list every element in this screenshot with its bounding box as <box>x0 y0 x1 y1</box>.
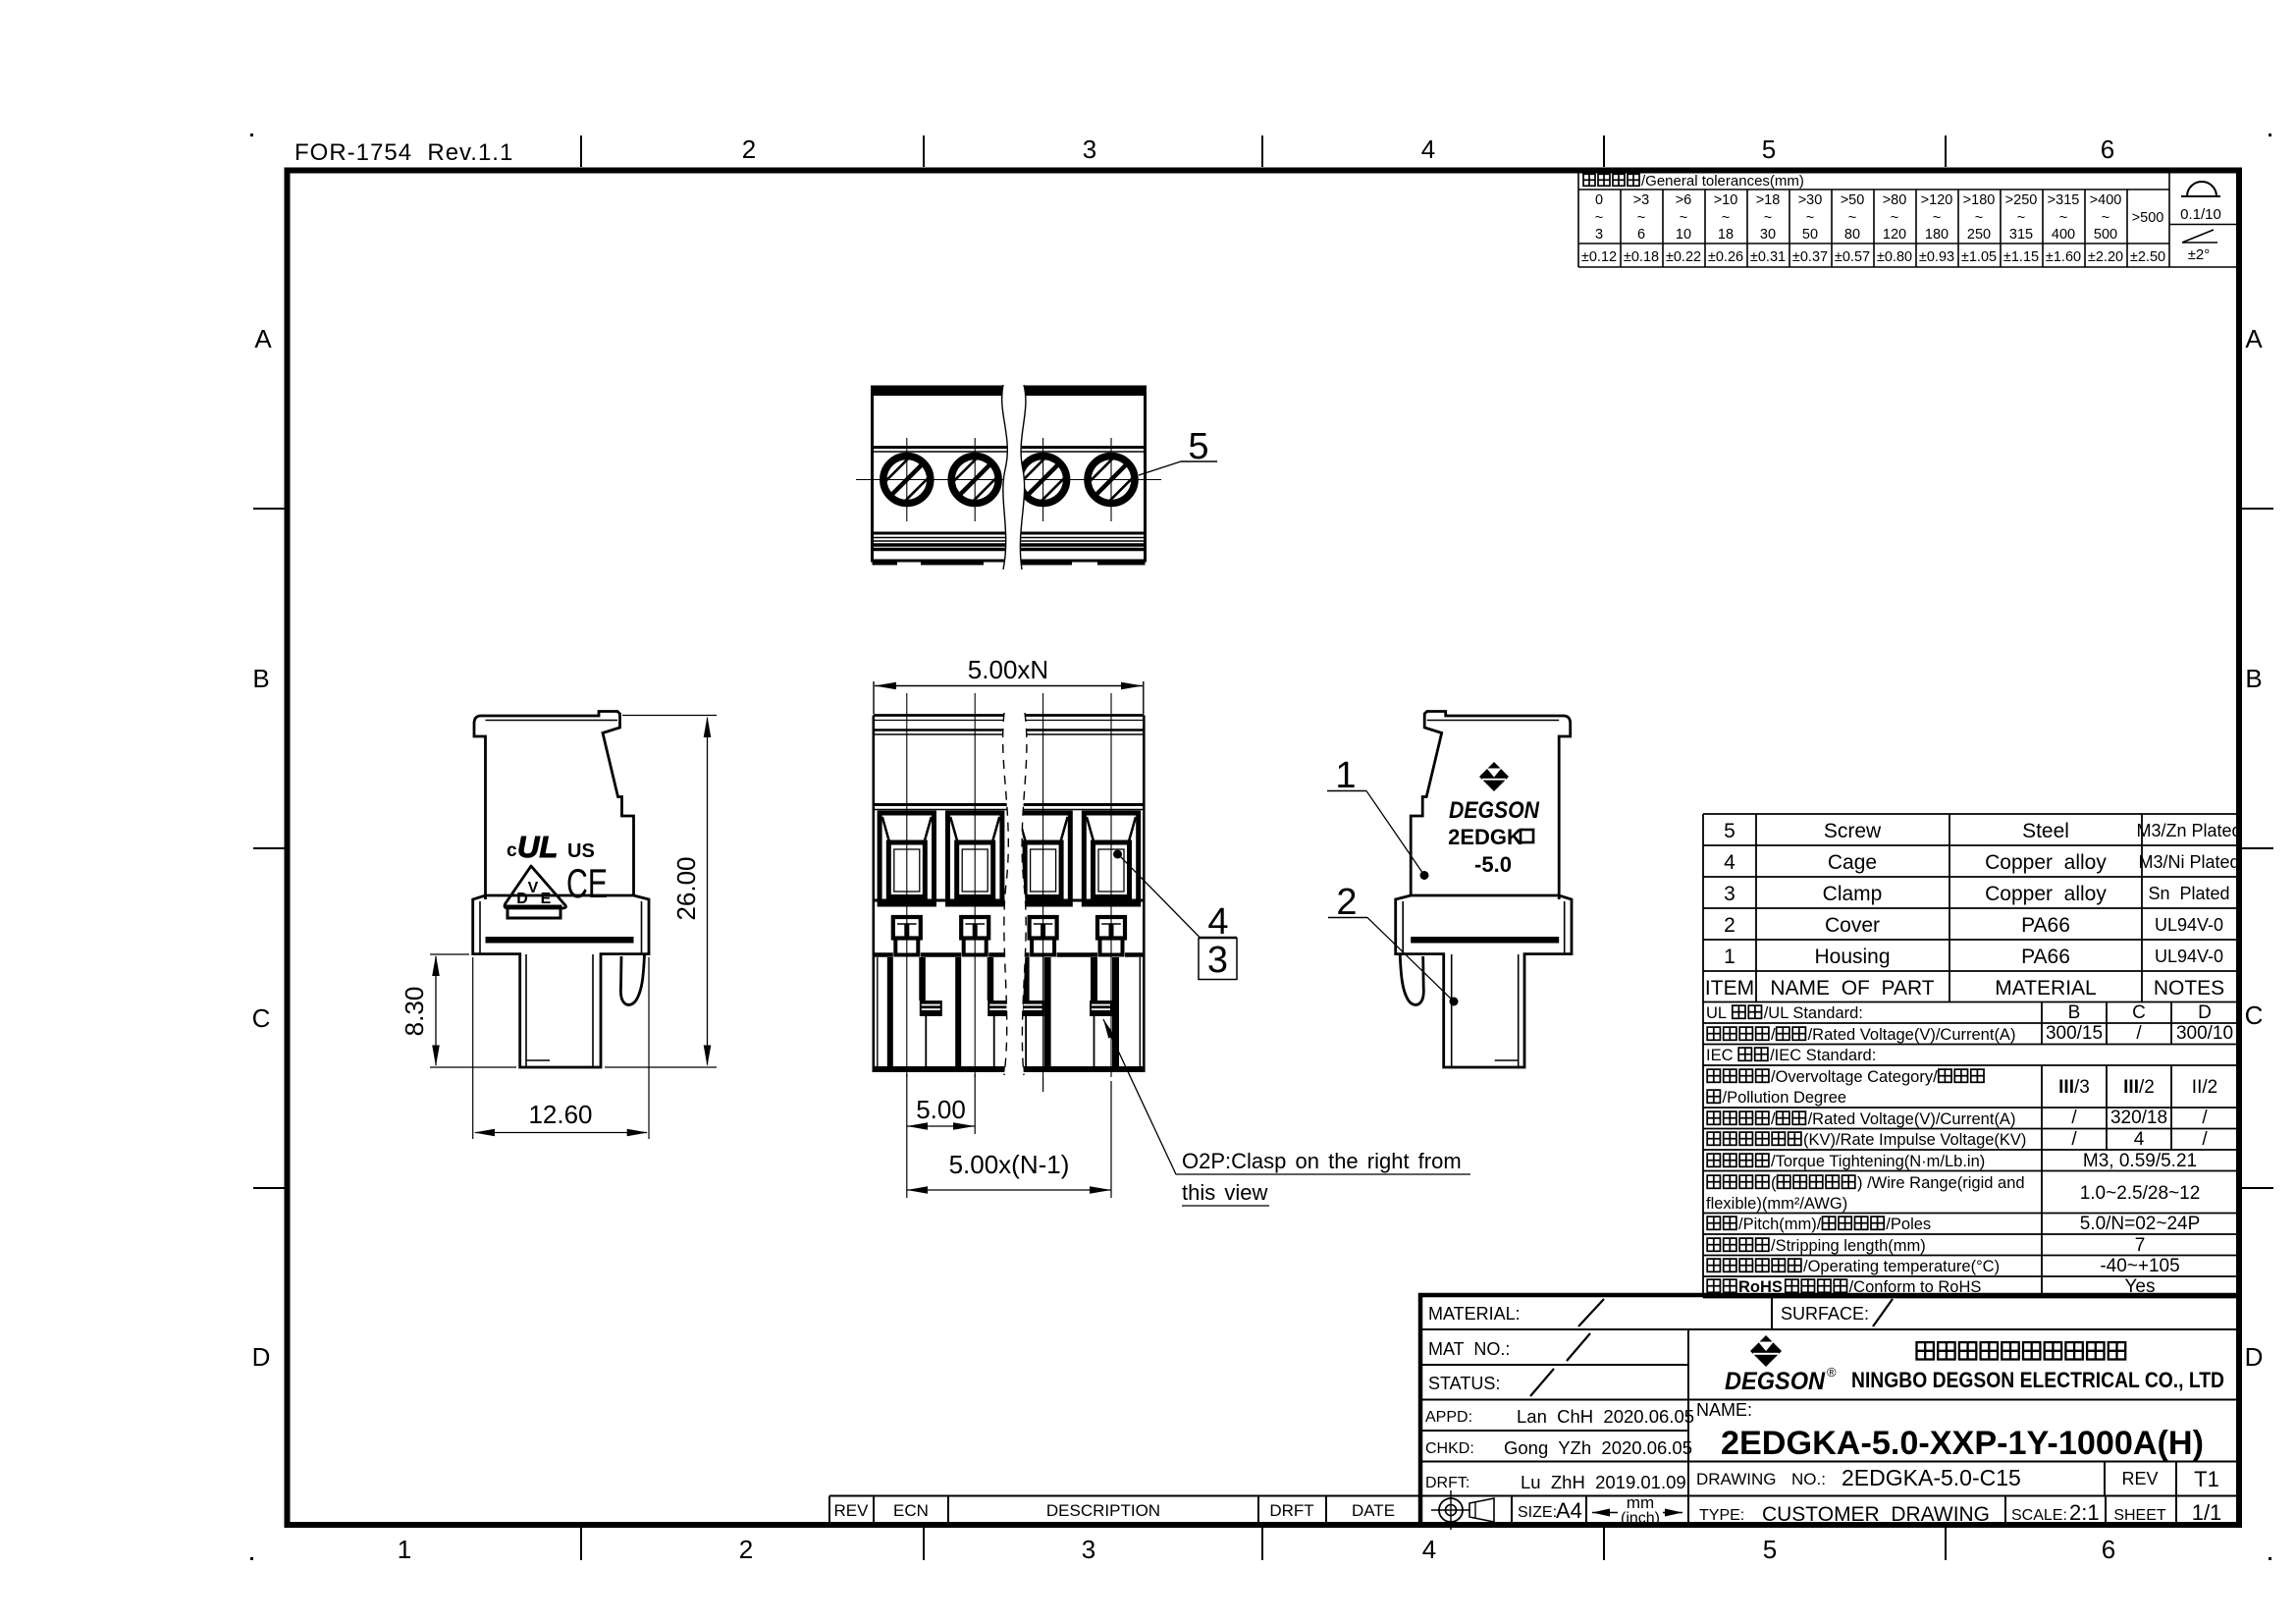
svg-text:TYPE:: TYPE: <box>1699 1507 1744 1524</box>
svg-text:1: 1 <box>1335 755 1356 796</box>
svg-text:UL: UL <box>1706 1004 1731 1022</box>
svg-text:B: B <box>2245 664 2262 693</box>
svg-text:~: ~ <box>1722 210 1730 226</box>
svg-text:50: 50 <box>1802 227 1818 243</box>
svg-text:D: D <box>2245 1342 2264 1372</box>
svg-text:8.30: 8.30 <box>400 987 429 1037</box>
svg-text:MAT NO.:: MAT NO.: <box>1428 1339 1510 1359</box>
svg-text:±0.18: ±0.18 <box>1624 249 1659 265</box>
svg-text:>315: >315 <box>2048 192 2080 208</box>
svg-text:/: / <box>1771 1110 1776 1128</box>
svg-text:~: ~ <box>1933 210 1941 226</box>
svg-text:6: 6 <box>2101 135 2114 164</box>
svg-text:2EDGKA-5.0-C15: 2EDGKA-5.0-C15 <box>1842 1465 2021 1490</box>
svg-text:DRFT: DRFT <box>1269 1501 1313 1520</box>
svg-text:~: ~ <box>1680 210 1687 226</box>
svg-text:6: 6 <box>1637 227 1645 243</box>
svg-text:±0.12: ±0.12 <box>1581 249 1617 265</box>
svg-text:30: 30 <box>1760 227 1776 243</box>
svg-text:/: / <box>2071 1129 2077 1150</box>
svg-text:II/2: II/2 <box>2192 1077 2217 1098</box>
svg-text:>50: >50 <box>1841 192 1865 208</box>
svg-text:4: 4 <box>1207 901 1228 943</box>
svg-text:D: D <box>2198 1002 2212 1023</box>
svg-text:3: 3 <box>1595 227 1603 243</box>
svg-text:E: E <box>541 891 552 907</box>
svg-text:>400: >400 <box>2090 192 2122 208</box>
svg-text:~: ~ <box>1975 210 1983 226</box>
svg-text:DRFT:: DRFT: <box>1425 1475 1469 1491</box>
svg-text:APPD:: APPD: <box>1425 1409 1472 1426</box>
svg-text:/: / <box>2071 1108 2077 1128</box>
svg-text:±1.60: ±1.60 <box>2046 249 2081 265</box>
svg-text:flexible)(mm²/AWG): flexible)(mm²/AWG) <box>1706 1195 1847 1213</box>
svg-text:>10: >10 <box>1714 192 1738 208</box>
svg-text:7: 7 <box>2135 1235 2146 1256</box>
svg-text:T1: T1 <box>2194 1467 2219 1491</box>
svg-text:/Operating temperature(°C): /Operating temperature(°C) <box>1803 1258 2000 1275</box>
svg-text:B: B <box>2068 1002 2081 1023</box>
svg-text:Cover: Cover <box>1825 914 1880 937</box>
svg-text:B: B <box>252 664 269 693</box>
svg-text:3: 3 <box>1724 883 1735 905</box>
svg-text:/Stripping length(mm): /Stripping length(mm) <box>1771 1237 1926 1255</box>
svg-text:±1.05: ±1.05 <box>1961 249 1997 265</box>
svg-text:±1.15: ±1.15 <box>2003 249 2039 265</box>
svg-text:Cage: Cage <box>1828 851 1877 874</box>
svg-text:/: / <box>2202 1129 2208 1150</box>
svg-text:26.00: 26.00 <box>671 856 701 920</box>
svg-text:NOTES: NOTES <box>2154 977 2224 1000</box>
svg-text:Copper alloy: Copper alloy <box>1985 851 2107 874</box>
svg-text:D: D <box>516 891 528 907</box>
svg-text:/Torque Tightening(N·m/Lb.in): /Torque Tightening(N·m/Lb.in) <box>1771 1153 1985 1170</box>
svg-text:3: 3 <box>1082 1535 1095 1564</box>
svg-text:NAME:: NAME: <box>1696 1400 1752 1420</box>
svg-text:Sn Plated: Sn Plated <box>2148 884 2229 903</box>
svg-text:ITEM: ITEM <box>1705 977 1754 1000</box>
svg-text:C: C <box>2245 1001 2264 1030</box>
svg-text:4: 4 <box>1724 851 1735 874</box>
svg-text:A4: A4 <box>1556 1498 1582 1523</box>
svg-text:DEGSON: DEGSON <box>1449 797 1540 824</box>
svg-text:C: C <box>2132 1002 2146 1023</box>
svg-text:2EDGK: 2EDGK <box>1448 825 1522 849</box>
svg-text:/: / <box>1771 1026 1776 1044</box>
svg-text:~: ~ <box>1848 210 1856 226</box>
svg-text:~: ~ <box>1595 210 1603 226</box>
svg-text:/Overvoltage Category/: /Overvoltage Category/ <box>1771 1068 1938 1086</box>
svg-text:5: 5 <box>1763 1535 1777 1564</box>
svg-text:CE: CE <box>566 860 608 906</box>
svg-text:M3/Zn Plated: M3/Zn Plated <box>2136 821 2241 840</box>
svg-text:4: 4 <box>2134 1129 2145 1150</box>
svg-text:Copper alloy: Copper alloy <box>1985 883 2107 905</box>
svg-text:300/15: 300/15 <box>2046 1023 2103 1044</box>
svg-text:>30: >30 <box>1798 192 1823 208</box>
svg-text:MATERIAL:: MATERIAL: <box>1428 1304 1521 1324</box>
svg-text:/IEC Standard:: /IEC Standard: <box>1770 1047 1876 1064</box>
svg-text:±0.26: ±0.26 <box>1708 249 1743 265</box>
svg-text:/: / <box>2136 1023 2142 1044</box>
svg-text:~: ~ <box>2017 210 2025 226</box>
svg-text:c: c <box>507 840 517 861</box>
svg-text:PA66: PA66 <box>2021 914 2070 937</box>
svg-text:REV: REV <box>834 1501 870 1520</box>
svg-text:this view: this view <box>1182 1180 1267 1205</box>
svg-text:315: 315 <box>2009 227 2033 243</box>
svg-text:~: ~ <box>1764 210 1772 226</box>
svg-text:Steel: Steel <box>2022 820 2069 842</box>
svg-text:5.00: 5.00 <box>916 1095 966 1124</box>
svg-text:SURFACE:: SURFACE: <box>1781 1304 1869 1324</box>
svg-text:DEGSON: DEGSON <box>1725 1368 1826 1395</box>
svg-text:Screw: Screw <box>1824 820 1882 842</box>
svg-text:6: 6 <box>2102 1535 2115 1564</box>
svg-text:>120: >120 <box>1921 192 1953 208</box>
svg-text:/UL Standard:: /UL Standard: <box>1764 1004 1863 1022</box>
svg-text:REV: REV <box>2121 1469 2158 1488</box>
svg-text:CUSTOMER DRAWING: CUSTOMER DRAWING <box>1762 1503 1990 1526</box>
svg-text:D: D <box>252 1342 271 1372</box>
svg-text:ECN: ECN <box>893 1501 929 1520</box>
svg-text:4: 4 <box>1421 135 1435 164</box>
svg-text:/Pitch(mm)/: /Pitch(mm)/ <box>1738 1216 1822 1233</box>
svg-text:2:1: 2:1 <box>2069 1500 2100 1525</box>
svg-text:250: 250 <box>1967 227 1991 243</box>
svg-text:NINGBO DEGSON ELECTRICAL CO.,: NINGBO DEGSON ELECTRICAL CO., LTD <box>1851 1368 2224 1392</box>
svg-text:80: 80 <box>1844 227 1860 243</box>
svg-text:(inch): (inch) <box>1621 1510 1660 1527</box>
svg-text:2: 2 <box>742 135 756 164</box>
svg-text:STATUS:: STATUS: <box>1428 1374 1500 1393</box>
svg-text:-40~+105: -40~+105 <box>2100 1256 2179 1276</box>
svg-text:~: ~ <box>1637 210 1645 226</box>
svg-text:12.60: 12.60 <box>528 1100 592 1129</box>
svg-text:3: 3 <box>1207 940 1228 981</box>
svg-text:2: 2 <box>1336 882 1357 923</box>
svg-text:MATERIAL: MATERIAL <box>1995 977 2096 1000</box>
svg-text:CHKD:: CHKD: <box>1425 1440 1474 1457</box>
svg-text:4: 4 <box>1422 1535 1436 1564</box>
svg-text:US: US <box>567 840 595 862</box>
svg-text:>6: >6 <box>1676 192 1692 208</box>
svg-text:III/2: III/2 <box>2123 1077 2155 1098</box>
svg-text:NAME OF PART: NAME OF PART <box>1770 977 1934 1000</box>
svg-text:A: A <box>254 324 272 353</box>
svg-text:3: 3 <box>1083 135 1096 164</box>
svg-text:SCALE:: SCALE: <box>2011 1507 2067 1524</box>
svg-text:/Rated Voltage(V)/Current(A): /Rated Voltage(V)/Current(A) <box>1808 1026 2016 1044</box>
svg-text:>3: >3 <box>1633 192 1650 208</box>
svg-text:Lan ChH 2020.06.05: Lan ChH 2020.06.05 <box>1517 1406 1694 1427</box>
svg-text:DESCRIPTION: DESCRIPTION <box>1046 1501 1160 1520</box>
svg-text:2: 2 <box>1724 914 1735 937</box>
svg-text:A: A <box>2245 324 2263 353</box>
svg-text:PA66: PA66 <box>2021 946 2070 968</box>
svg-text:~: ~ <box>2102 210 2109 226</box>
svg-text:®: ® <box>1827 1365 1837 1380</box>
svg-text:5: 5 <box>1724 820 1735 842</box>
svg-text:C: C <box>252 1003 271 1033</box>
svg-text:±0.80: ±0.80 <box>1877 249 1912 265</box>
svg-text:1.0~2.5/28~12: 1.0~2.5/28~12 <box>2080 1183 2201 1204</box>
svg-text:/Pollution Degree: /Pollution Degree <box>1723 1089 1847 1107</box>
svg-text:>80: >80 <box>1883 192 1907 208</box>
svg-text:±0.31: ±0.31 <box>1750 249 1786 265</box>
svg-text:1: 1 <box>1724 946 1735 968</box>
svg-text:/Poles: /Poles <box>1886 1216 1931 1233</box>
svg-text:0: 0 <box>1595 192 1603 208</box>
svg-text:~: ~ <box>2059 210 2067 226</box>
svg-text:>250: >250 <box>2005 192 2038 208</box>
svg-text:FOR-1754 Rev.1.1: FOR-1754 Rev.1.1 <box>294 139 513 166</box>
svg-text:DRAWING NO.:: DRAWING NO.: <box>1696 1470 1826 1488</box>
svg-text:III/3: III/3 <box>2058 1077 2090 1098</box>
svg-text:5.0/N=02~24P: 5.0/N=02~24P <box>2080 1214 2201 1234</box>
svg-text:UL94V-0: UL94V-0 <box>2155 915 2223 935</box>
svg-text:V: V <box>528 880 539 896</box>
svg-text:0.1/10: 0.1/10 <box>2180 206 2221 223</box>
svg-text:O2P:Clasp on the right from: O2P:Clasp on the right from <box>1182 1149 1462 1173</box>
svg-text:±2.50: ±2.50 <box>2130 249 2165 265</box>
svg-text:±0.93: ±0.93 <box>1919 249 1954 265</box>
svg-text:1: 1 <box>398 1535 411 1564</box>
svg-text:Lu ZhH 2019.01.09: Lu ZhH 2019.01.09 <box>1521 1472 1686 1492</box>
svg-text:/General tolerances(mm): /General tolerances(mm) <box>1641 173 1804 189</box>
svg-text:1/1: 1/1 <box>2192 1500 2222 1525</box>
svg-text:Housing: Housing <box>1814 946 1890 968</box>
svg-text:300/10: 300/10 <box>2176 1023 2233 1044</box>
svg-text:120: 120 <box>1883 227 1906 243</box>
svg-text:±0.22: ±0.22 <box>1666 249 1701 265</box>
svg-text:400: 400 <box>2052 227 2075 243</box>
svg-text:320/18: 320/18 <box>2110 1108 2167 1128</box>
svg-text:M3, 0.59/5.21: M3, 0.59/5.21 <box>2083 1151 2197 1171</box>
svg-text:(KV)/Rate Impulse Voltage(KV): (KV)/Rate Impulse Voltage(KV) <box>1803 1131 2026 1149</box>
svg-text:UL94V-0: UL94V-0 <box>2155 947 2223 966</box>
svg-text:IEC: IEC <box>1706 1047 1737 1064</box>
svg-text:>500: >500 <box>2132 210 2164 226</box>
svg-text:SHEET: SHEET <box>2113 1507 2166 1524</box>
svg-text:180: 180 <box>1925 227 1949 243</box>
svg-text:500: 500 <box>2094 227 2117 243</box>
svg-text:5: 5 <box>1762 135 1776 164</box>
svg-text:Gong YZh 2020.06.05: Gong YZh 2020.06.05 <box>1504 1437 1692 1458</box>
svg-text:>18: >18 <box>1756 192 1781 208</box>
svg-text:2EDGKA-5.0-XXP-1Y-1000A(H): 2EDGKA-5.0-XXP-1Y-1000A(H) <box>1721 1425 2204 1462</box>
svg-text:18: 18 <box>1718 227 1734 243</box>
svg-text:~: ~ <box>1806 210 1814 226</box>
svg-text:5.00xN: 5.00xN <box>968 655 1048 684</box>
svg-text:UL: UL <box>517 830 558 864</box>
svg-text:) /Wire Range(rigid and: ) /Wire Range(rigid and <box>1857 1174 2025 1192</box>
svg-text:/Rated Voltage(V)/Current(A): /Rated Voltage(V)/Current(A) <box>1808 1110 2016 1128</box>
svg-text:/: / <box>2202 1108 2208 1128</box>
svg-text:5.00x(N-1): 5.00x(N-1) <box>949 1150 1070 1179</box>
svg-text:M3/Ni Plated: M3/Ni Plated <box>2138 852 2239 872</box>
svg-text:DATE: DATE <box>1352 1501 1395 1520</box>
svg-text:±0.37: ±0.37 <box>1792 249 1828 265</box>
svg-text:~: ~ <box>1891 210 1898 226</box>
svg-text:±2°: ±2° <box>2188 246 2211 263</box>
svg-text:(: ( <box>1771 1174 1777 1192</box>
svg-text:±2.20: ±2.20 <box>2088 249 2123 265</box>
svg-text:±0.57: ±0.57 <box>1835 249 1870 265</box>
svg-text:2: 2 <box>739 1535 753 1564</box>
svg-text:SIZE:: SIZE: <box>1518 1504 1557 1521</box>
svg-text:10: 10 <box>1676 227 1691 243</box>
svg-text:-5.0: -5.0 <box>1474 852 1512 877</box>
svg-text:>180: >180 <box>1963 192 1996 208</box>
svg-text:Clamp: Clamp <box>1823 883 1883 905</box>
